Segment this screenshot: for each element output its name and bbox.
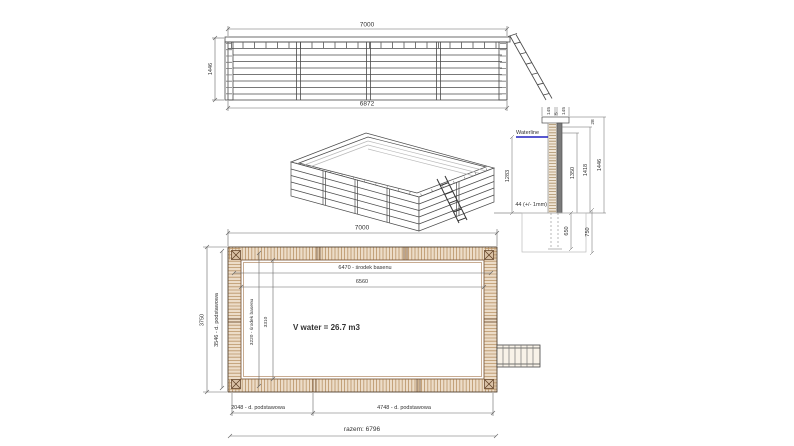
- section-ground: [494, 213, 586, 252]
- section-outer-board: [557, 123, 562, 213]
- plan-dim-3750: 3750: [200, 314, 206, 326]
- elevation-dim-7000: 7000: [360, 22, 375, 29]
- plan-corner-posts: [232, 251, 494, 389]
- section-dim-145-left: 145: [546, 107, 552, 115]
- plan-dim-razem: razem: 6796: [344, 426, 381, 433]
- elevation-planks: [233, 55, 502, 94]
- isometric-view: [291, 133, 494, 231]
- section-height-dims: 1350 1418 1446 28: [562, 117, 606, 213]
- section-dim-1350: 1350: [570, 167, 576, 179]
- plan-dim-6470: 6470 - środek basenu: [338, 265, 391, 271]
- section-dim-28: 28: [590, 119, 596, 125]
- elevation-body: [225, 37, 510, 100]
- section-wall: [548, 123, 557, 213]
- section-dim-1283: 1283: [505, 170, 511, 182]
- pool-technical-drawing: 7000 1446 6872: [0, 0, 794, 446]
- plan-dim-3220: 3220 - środek basenu: [249, 298, 255, 345]
- plan-view: V water = 26.7 m3 7000 6470 - środek bas…: [200, 225, 541, 439]
- section-cap-dims: 145 5 145: [542, 107, 569, 116]
- elevation-dim-6872: 6872: [360, 101, 375, 108]
- plan-inner-edge: [241, 260, 484, 379]
- elevation-view: 7000 1446 6872: [208, 22, 552, 112]
- section-thickness-label: 44 (+/- 1mm): [515, 202, 547, 208]
- plan-dim-3546: 3546 - d. podstawowa: [214, 292, 220, 347]
- section-dim-1446: 1446: [597, 159, 603, 171]
- drawing-sheet: 7000 1446 6872: [0, 0, 794, 446]
- cross-section-view: 145 5 145 Waterline 1283 44 (+/- 1mm) 13…: [494, 107, 606, 255]
- section-dim-5: 5: [554, 112, 560, 115]
- elevation-ladder: [508, 34, 552, 101]
- waterline-label: Waterline: [516, 130, 539, 136]
- section-dim-1418: 1418: [583, 164, 589, 176]
- volume-label: V water = 26.7 m3: [293, 323, 360, 332]
- elevation-dimensions: 7000 1446 6872: [208, 22, 509, 112]
- section-top-cap: [542, 117, 569, 123]
- section-dim-650: 650: [564, 226, 570, 235]
- elevation-dim-1446: 1446: [208, 63, 214, 75]
- section-below-dims: 650 750: [564, 208, 594, 255]
- plan-ladder: [497, 345, 540, 367]
- elevation-posts: [297, 42, 441, 100]
- plan-dim-2048: 2048 - d. podstawowa: [231, 405, 286, 411]
- section-dim-750: 750: [585, 227, 591, 236]
- section-dim-145-right: 145: [561, 107, 567, 115]
- plan-dim-4748: 4748 - d. podstawowa: [377, 405, 432, 411]
- plan-dim-3310: 3310: [263, 316, 269, 327]
- plan-dim-7000: 7000: [355, 225, 370, 232]
- elevation-corner-posts: [225, 42, 507, 100]
- plan-dim-6560: 6560: [356, 279, 368, 285]
- section-depth-dim: 1283: [505, 135, 514, 215]
